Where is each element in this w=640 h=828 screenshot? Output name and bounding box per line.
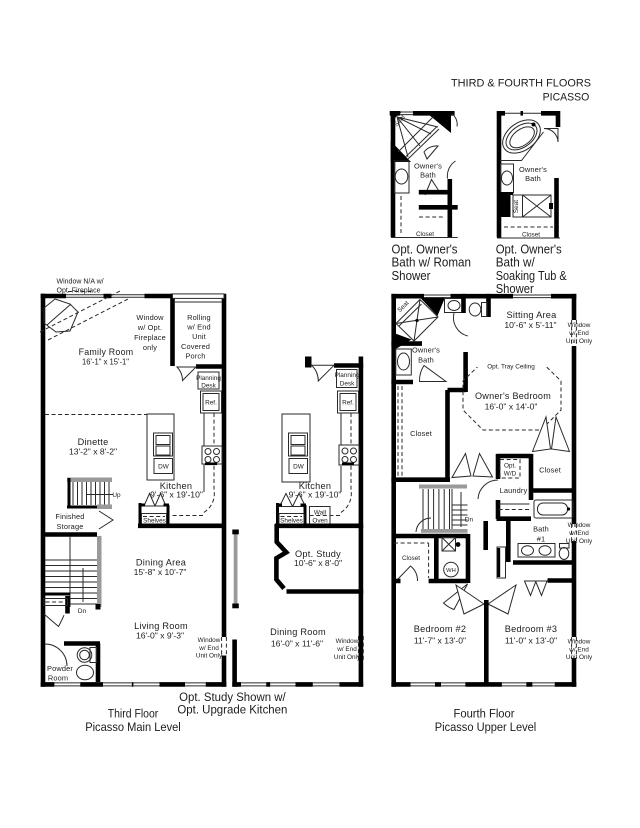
svg-text:Fireplace: Fireplace bbox=[134, 333, 166, 342]
svg-text:WH: WH bbox=[446, 568, 456, 574]
svg-text:Window: Window bbox=[568, 322, 591, 329]
svg-text:Closet: Closet bbox=[402, 555, 420, 562]
svg-text:Bedroom #3: Bedroom #3 bbox=[505, 624, 558, 634]
svg-text:Owner's: Owner's bbox=[519, 165, 547, 174]
svg-text:Shower: Shower bbox=[496, 282, 534, 296]
svg-text:Sitting Area: Sitting Area bbox=[507, 310, 558, 320]
svg-text:Room: Room bbox=[48, 674, 68, 683]
svg-text:W/D: W/D bbox=[504, 471, 517, 478]
svg-text:16'-0" x 14'-0": 16'-0" x 14'-0" bbox=[485, 402, 538, 412]
svg-text:w/ End: w/ End bbox=[336, 646, 357, 653]
svg-text:10'-6" x 5'-11": 10'-6" x 5'-11" bbox=[504, 320, 556, 330]
svg-text:Window: Window bbox=[568, 522, 591, 529]
svg-text:Unit Only: Unit Only bbox=[196, 653, 223, 660]
svg-text:Oven: Oven bbox=[312, 518, 328, 525]
svg-text:Shelves: Shelves bbox=[143, 518, 166, 525]
svg-text:Dn: Dn bbox=[465, 517, 474, 524]
svg-text:PICASSO: PICASSO bbox=[543, 92, 590, 104]
svg-text:Closet: Closet bbox=[522, 232, 540, 239]
svg-text:Dinette: Dinette bbox=[78, 437, 109, 447]
svg-text:Opt. Fireplace: Opt. Fireplace bbox=[57, 287, 101, 294]
svg-text:Ref.: Ref. bbox=[205, 400, 217, 407]
svg-text:Dining Room: Dining Room bbox=[270, 627, 326, 637]
svg-text:Planning: Planning bbox=[335, 372, 360, 379]
svg-text:Bath w/ Roman: Bath w/ Roman bbox=[392, 256, 472, 270]
svg-text:Finished: Finished bbox=[55, 512, 84, 521]
svg-text:w/ Opt.: w/ Opt. bbox=[137, 323, 162, 332]
svg-text:Dining Area: Dining Area bbox=[136, 558, 187, 568]
svg-text:Living Room: Living Room bbox=[134, 621, 188, 631]
svg-text:Desk: Desk bbox=[201, 383, 216, 390]
svg-text:Third Floor: Third Floor bbox=[108, 706, 159, 720]
svg-text:Owner's: Owner's bbox=[412, 346, 440, 355]
svg-text:w/ End: w/ End bbox=[198, 645, 219, 652]
svg-text:Window: Window bbox=[198, 637, 221, 644]
svg-text:Porch: Porch bbox=[185, 351, 205, 360]
svg-text:Window: Window bbox=[336, 638, 359, 645]
svg-text:Bath: Bath bbox=[420, 171, 436, 180]
svg-text:Family Room: Family Room bbox=[79, 347, 134, 357]
svg-text:Window N/A w/: Window N/A w/ bbox=[57, 279, 104, 286]
svg-text:Picasso Main Level: Picasso Main Level bbox=[85, 720, 181, 734]
svg-text:#1: #1 bbox=[537, 535, 546, 544]
svg-text:11'-0" x 13'-0": 11'-0" x 13'-0" bbox=[505, 635, 557, 645]
svg-text:Window: Window bbox=[136, 313, 164, 322]
svg-text:Closet: Closet bbox=[410, 429, 432, 438]
svg-text:DW: DW bbox=[158, 464, 170, 471]
svg-text:Fourth Floor: Fourth Floor bbox=[454, 706, 515, 720]
svg-text:Ref.: Ref. bbox=[342, 400, 354, 407]
svg-text:Opt. Owner's: Opt. Owner's bbox=[392, 242, 458, 256]
svg-text:Closet: Closet bbox=[416, 231, 434, 238]
svg-text:Unit Only: Unit Only bbox=[566, 338, 593, 345]
svg-text:Planning: Planning bbox=[196, 375, 221, 382]
svg-text:Opt. Tray Ceiling: Opt. Tray Ceiling bbox=[487, 364, 535, 371]
svg-text:Owner's: Owner's bbox=[414, 162, 442, 171]
svg-text:Bath: Bath bbox=[418, 356, 434, 365]
svg-text:Unit Only: Unit Only bbox=[566, 654, 593, 661]
svg-text:only: only bbox=[143, 343, 157, 352]
svg-text:Dn: Dn bbox=[78, 608, 87, 615]
svg-text:16'-1" x 15'-1": 16'-1" x 15'-1" bbox=[82, 357, 129, 367]
svg-text:15'-8" x 10'-7": 15'-8" x 10'-7" bbox=[134, 567, 187, 577]
svg-text:Desk: Desk bbox=[340, 381, 355, 388]
svg-text:Wall: Wall bbox=[314, 510, 326, 517]
svg-text:Bath w/: Bath w/ bbox=[496, 256, 535, 270]
svg-text:Covered: Covered bbox=[181, 342, 210, 351]
svg-text:Laundry: Laundry bbox=[500, 486, 528, 495]
svg-text:w/ End: w/ End bbox=[568, 530, 589, 537]
svg-text:Bath: Bath bbox=[533, 525, 549, 534]
svg-text:Shelves: Shelves bbox=[280, 518, 303, 525]
svg-text:DW: DW bbox=[293, 464, 305, 471]
svg-text:13'-2" x 8'-2": 13'-2" x 8'-2" bbox=[69, 447, 117, 457]
svg-text:Seat: Seat bbox=[513, 200, 520, 213]
svg-text:Shower: Shower bbox=[392, 269, 431, 283]
svg-text:Opt. Upgrade Kitchen: Opt. Upgrade Kitchen bbox=[177, 702, 287, 716]
svg-text:Bath: Bath bbox=[525, 174, 541, 183]
svg-text:Owner's Bedroom: Owner's Bedroom bbox=[475, 391, 551, 401]
svg-text:Opt.: Opt. bbox=[504, 463, 516, 470]
svg-text:Unit Only: Unit Only bbox=[334, 654, 361, 661]
svg-text:Storage: Storage bbox=[57, 522, 84, 531]
svg-text:16'-0" x 9'-3": 16'-0" x 9'-3" bbox=[136, 631, 184, 641]
svg-text:Unit Only: Unit Only bbox=[566, 538, 593, 545]
svg-text:11'-7" x 13'-0": 11'-7" x 13'-0" bbox=[414, 635, 466, 645]
svg-text:16'-0" x 11'-6": 16'-0" x 11'-6" bbox=[271, 639, 323, 649]
svg-text:w/ End: w/ End bbox=[568, 330, 589, 337]
svg-text:Rolling: Rolling bbox=[187, 313, 211, 322]
svg-text:Closet: Closet bbox=[539, 466, 561, 475]
svg-text:Bedroom #2: Bedroom #2 bbox=[414, 624, 467, 634]
svg-text:Up: Up bbox=[112, 492, 121, 499]
svg-text:Opt. Owner's: Opt. Owner's bbox=[496, 242, 562, 256]
svg-text:w/ End: w/ End bbox=[568, 647, 589, 654]
svg-text:w/ End: w/ End bbox=[186, 323, 211, 332]
svg-text:10'-6" x 8'-0": 10'-6" x 8'-0" bbox=[294, 558, 342, 568]
svg-text:THIRD & FOURTH FLOORS: THIRD & FOURTH FLOORS bbox=[451, 77, 591, 89]
svg-text:Window: Window bbox=[568, 639, 591, 646]
svg-text:Powder: Powder bbox=[47, 664, 73, 673]
svg-text:Picasso Upper Level: Picasso Upper Level bbox=[435, 720, 537, 734]
svg-text:Unit: Unit bbox=[192, 332, 206, 341]
